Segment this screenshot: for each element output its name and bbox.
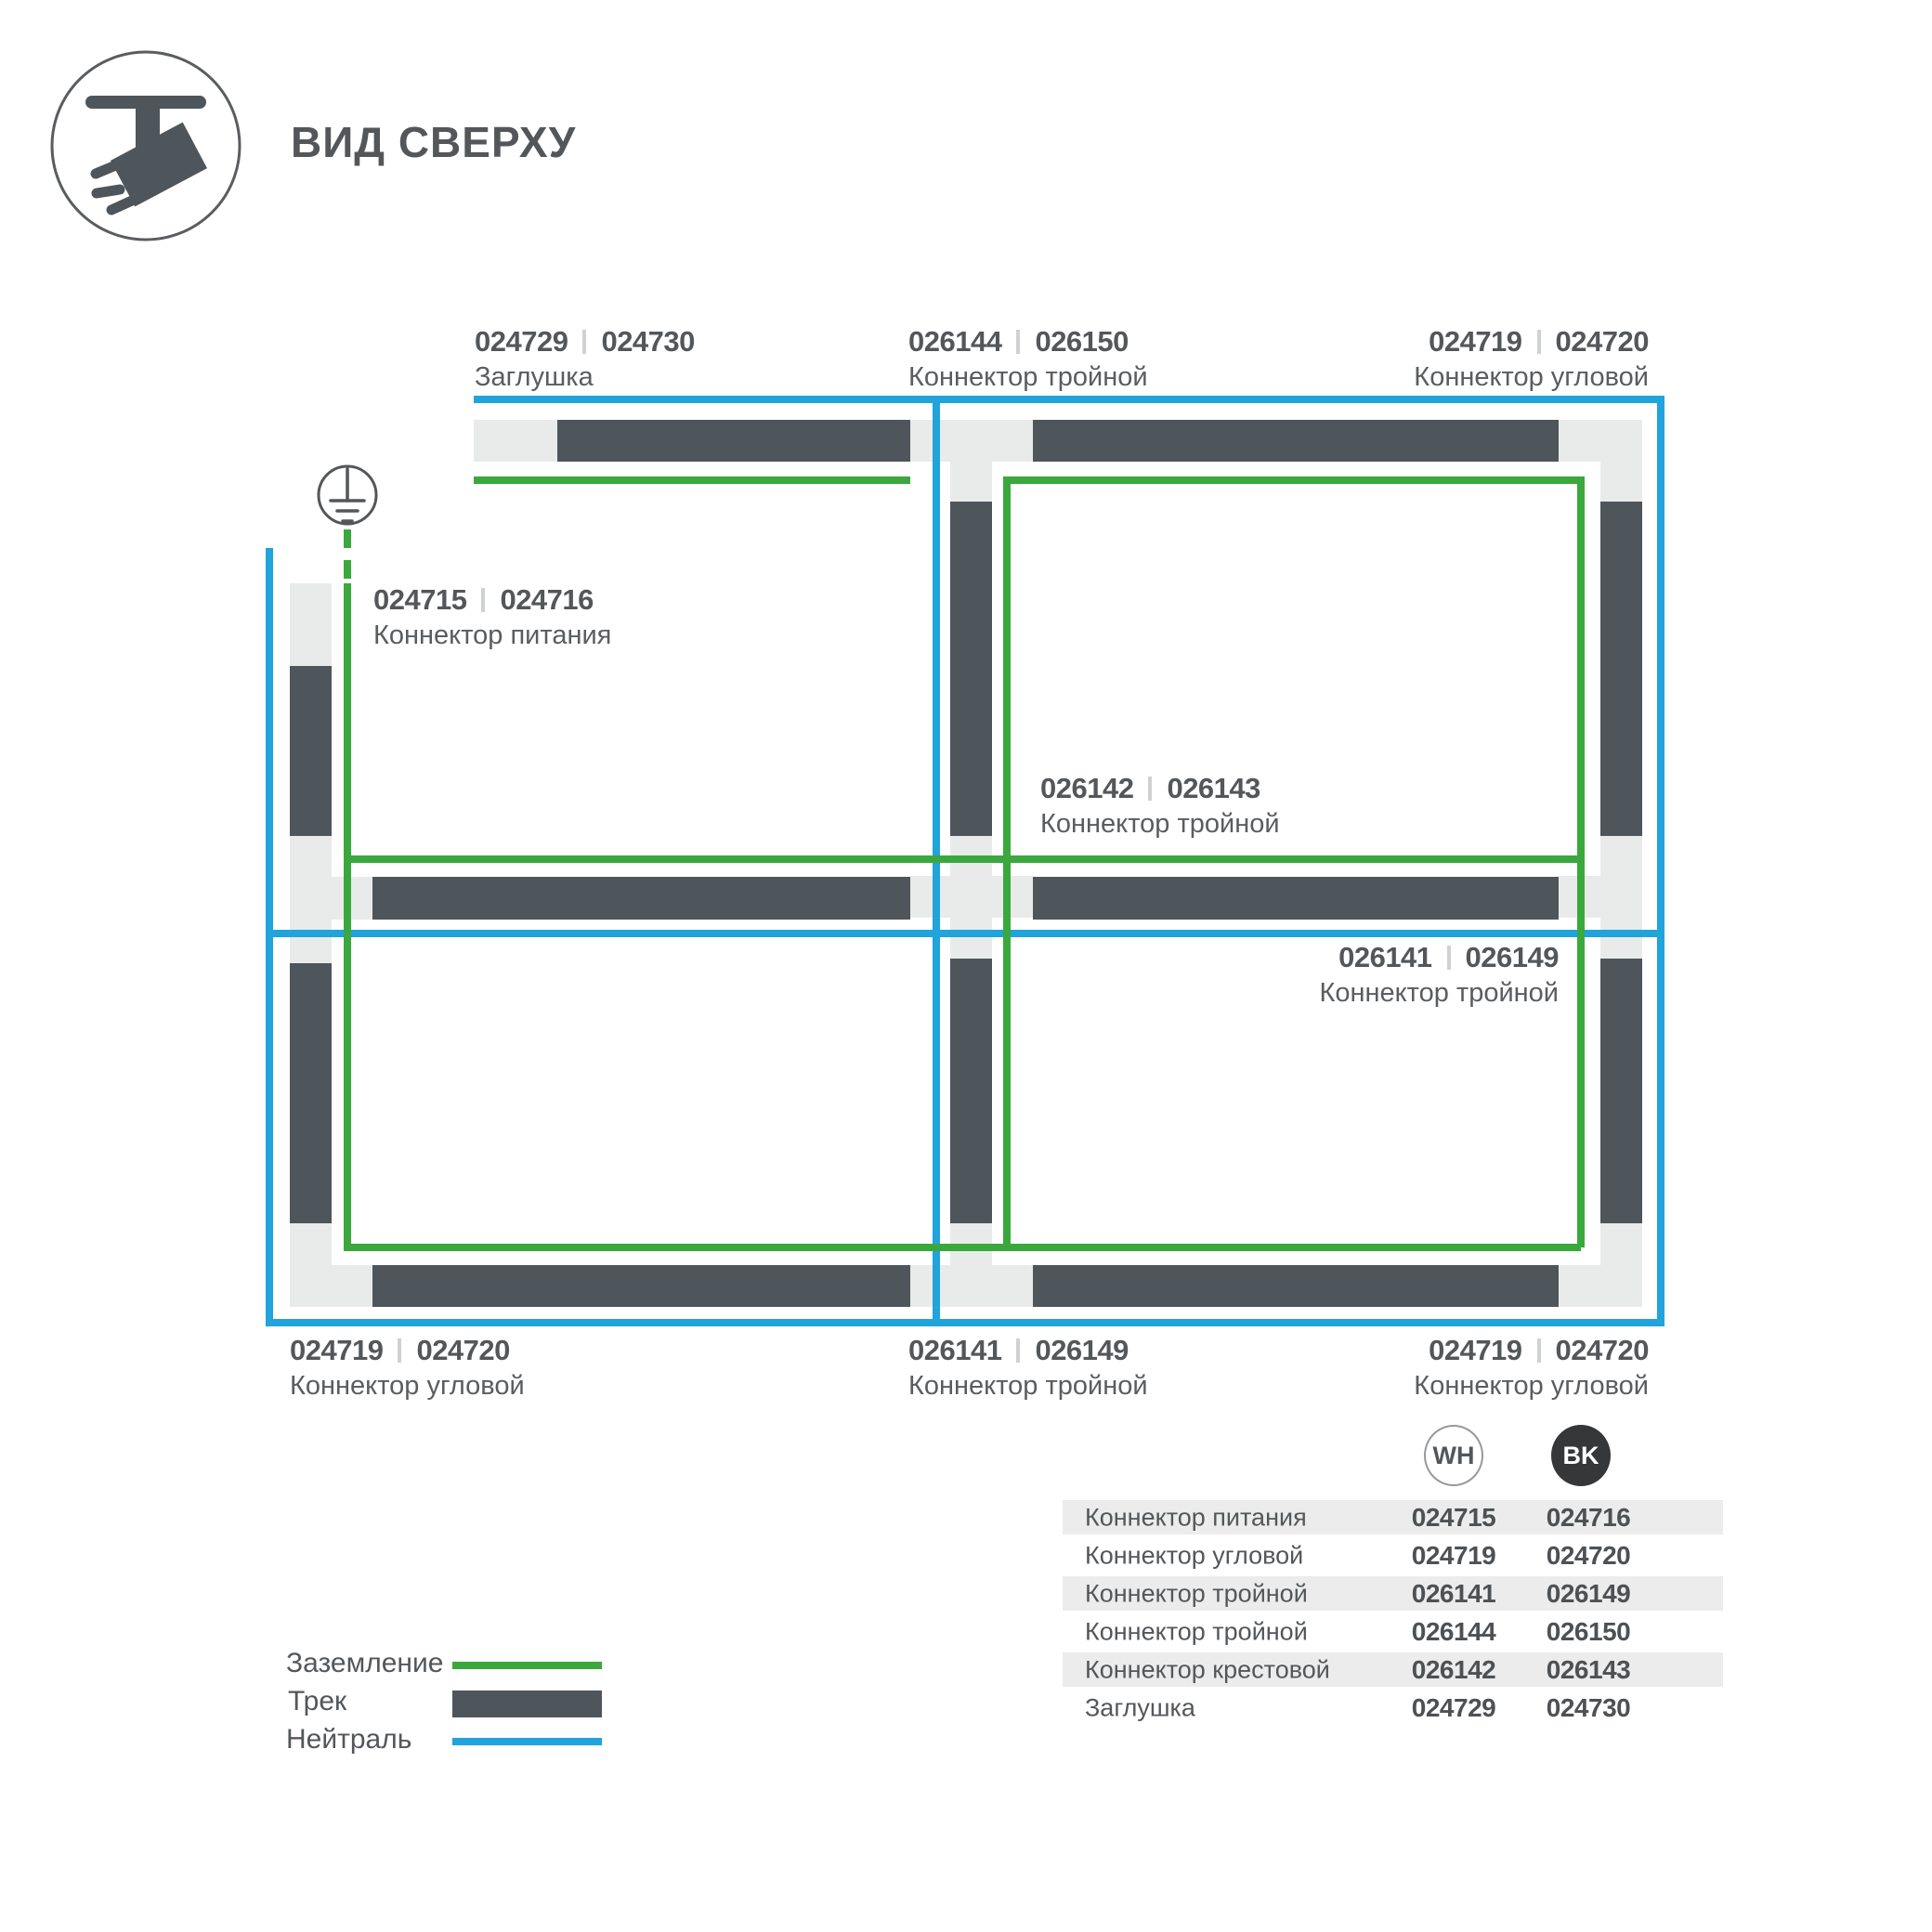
track-right-lower: [1600, 959, 1642, 1223]
label-divider: [1148, 777, 1152, 801]
label-triple-connector-mid-right: 026141026149 Коннектор тройной: [1319, 943, 1559, 1007]
row-wh-code: 026142: [1412, 1655, 1495, 1685]
label-corner-connector-bottom-left: 024719024720 Коннектор угловой: [290, 1336, 525, 1400]
part-numbers: 024719024720: [1414, 1336, 1649, 1364]
label-divider: [1447, 946, 1451, 970]
label-divider: [398, 1338, 401, 1363]
track-right-upper: [1600, 502, 1642, 836]
label-divider: [1016, 330, 1020, 354]
triple-connector-bottom: [910, 1223, 1033, 1307]
part-numbers: 026141026149: [1319, 943, 1559, 972]
part-name: Заглушка: [475, 364, 695, 391]
legend-track-swatch: [452, 1690, 602, 1717]
part-name: Коннектор тройной: [908, 364, 1148, 391]
ground-symbol-icon: [319, 466, 376, 524]
table-row: Коннектор угловой 024719 024720: [1063, 1538, 1723, 1573]
row-bk-code: 026143: [1547, 1655, 1630, 1685]
parts-table: Коннектор питания 024715 024716 Коннекто…: [1063, 1500, 1723, 1729]
row-wh-code: 024715: [1412, 1503, 1495, 1533]
part-numbers: 024719024720: [1414, 327, 1649, 356]
table-row: Коннектор тройной 026144 026150: [1063, 1614, 1723, 1649]
triple-connector-mid-right: [1559, 836, 1642, 959]
part-numbers: 024729024730: [475, 327, 695, 356]
triple-connector-mid-left: [290, 836, 372, 963]
ground-right-loop: [1007, 480, 1581, 1247]
legend-neutral-label: Нейтраль: [286, 1726, 411, 1754]
table-row: Коннектор питания 024715 024716: [1063, 1500, 1723, 1534]
row-part-name: Заглушка: [1085, 1693, 1195, 1722]
label-divider: [582, 330, 586, 354]
label-corner-connector-top-right: 024719024720 Коннектор угловой: [1414, 327, 1649, 391]
track-center-lower: [950, 959, 992, 1223]
table-row: Коннектор тройной 026141 026149: [1063, 1576, 1723, 1611]
label-corner-connector-bottom-right: 024719024720 Коннектор угловой: [1414, 1336, 1649, 1400]
label-triple-connector-bottom: 026141026149 Коннектор тройной: [908, 1336, 1148, 1400]
part-numbers: 026141026149: [908, 1336, 1148, 1364]
track-mid-left: [372, 877, 910, 920]
track-left-upper: [290, 666, 332, 836]
part-numbers: 026144026150: [908, 327, 1148, 356]
track-top-right: [1033, 420, 1559, 462]
part-numbers: 024719024720: [290, 1336, 525, 1364]
part-name: Коннектор тройной: [908, 1373, 1148, 1400]
label-divider: [1537, 330, 1541, 354]
part-name: Коннектор тройной: [1319, 980, 1559, 1007]
triple-connector-top: [910, 420, 1033, 502]
track-bottom-left: [372, 1265, 910, 1307]
table-row: Заглушка 024729 024730: [1063, 1690, 1723, 1725]
row-wh-code: 026144: [1412, 1617, 1495, 1647]
row-wh-code: 024719: [1412, 1541, 1495, 1571]
label-triple-connector-top: 026144026150 Коннектор тройной: [908, 327, 1148, 391]
row-bk-code: 024720: [1547, 1541, 1630, 1571]
row-wh-code: 026141: [1412, 1579, 1495, 1609]
part-name: Коннектор угловой: [1414, 1373, 1649, 1400]
legend-neutral-swatch: [452, 1738, 602, 1745]
row-part-name: Коннектор тройной: [1085, 1579, 1308, 1608]
part-numbers: 026142026143: [1040, 774, 1280, 803]
label-divider: [1537, 1338, 1541, 1363]
end-cap-connector: [474, 420, 557, 462]
part-name: Коннектор угловой: [290, 1373, 525, 1400]
legend-ground-swatch: [452, 1662, 602, 1669]
track-top-left: [557, 420, 910, 462]
power-connector: [290, 583, 332, 666]
part-name: Коннектор питания: [373, 622, 611, 649]
row-part-name: Коннектор питания: [1085, 1503, 1307, 1532]
label-divider: [481, 588, 485, 612]
white-color-badge: WH: [1424, 1425, 1483, 1486]
row-part-name: Коннектор крестовой: [1085, 1655, 1330, 1684]
top-view-schematic-page: ВИД СВЕРХУ 024729024730 Заглушка 0261440…: [0, 0, 1932, 1932]
part-name: Коннектор тройной: [1040, 811, 1280, 838]
label-end-cap: 024729024730 Заглушка: [475, 327, 695, 391]
row-bk-code: 024716: [1547, 1503, 1630, 1533]
track-center-upper: [950, 502, 992, 836]
black-color-badge: BK: [1551, 1425, 1611, 1486]
part-numbers: 024715024716: [373, 585, 611, 614]
corner-connector-top-right: [1559, 420, 1642, 502]
label-cross-connector: 026142026143 Коннектор тройной: [1040, 774, 1280, 838]
page-title: ВИД СВЕРХУ: [291, 117, 576, 167]
cross-connector-center: [910, 836, 1033, 959]
track-left-lower: [290, 963, 332, 1223]
track-spotlight-icon: [52, 52, 240, 240]
row-bk-code: 024730: [1547, 1693, 1630, 1723]
track-mid-right: [1033, 877, 1559, 920]
table-row: Коннектор крестовой 026142 026143: [1063, 1652, 1723, 1687]
row-wh-code: 024729: [1412, 1693, 1495, 1723]
track-bottom-right: [1033, 1265, 1559, 1307]
label-divider: [1016, 1338, 1020, 1363]
label-power-connector: 024715024716 Коннектор питания: [373, 585, 611, 649]
legend-ground-label: Заземление: [286, 1650, 443, 1677]
row-bk-code: 026150: [1547, 1617, 1630, 1647]
part-name: Коннектор угловой: [1414, 364, 1649, 391]
legend-track-label: Трек: [288, 1688, 346, 1716]
row-bk-code: 026149: [1547, 1579, 1630, 1609]
row-part-name: Коннектор угловой: [1085, 1541, 1303, 1570]
corner-connector-bottom-right: [1559, 1223, 1642, 1307]
corner-connector-bottom-left: [290, 1223, 372, 1307]
row-part-name: Коннектор тройной: [1085, 1617, 1308, 1646]
